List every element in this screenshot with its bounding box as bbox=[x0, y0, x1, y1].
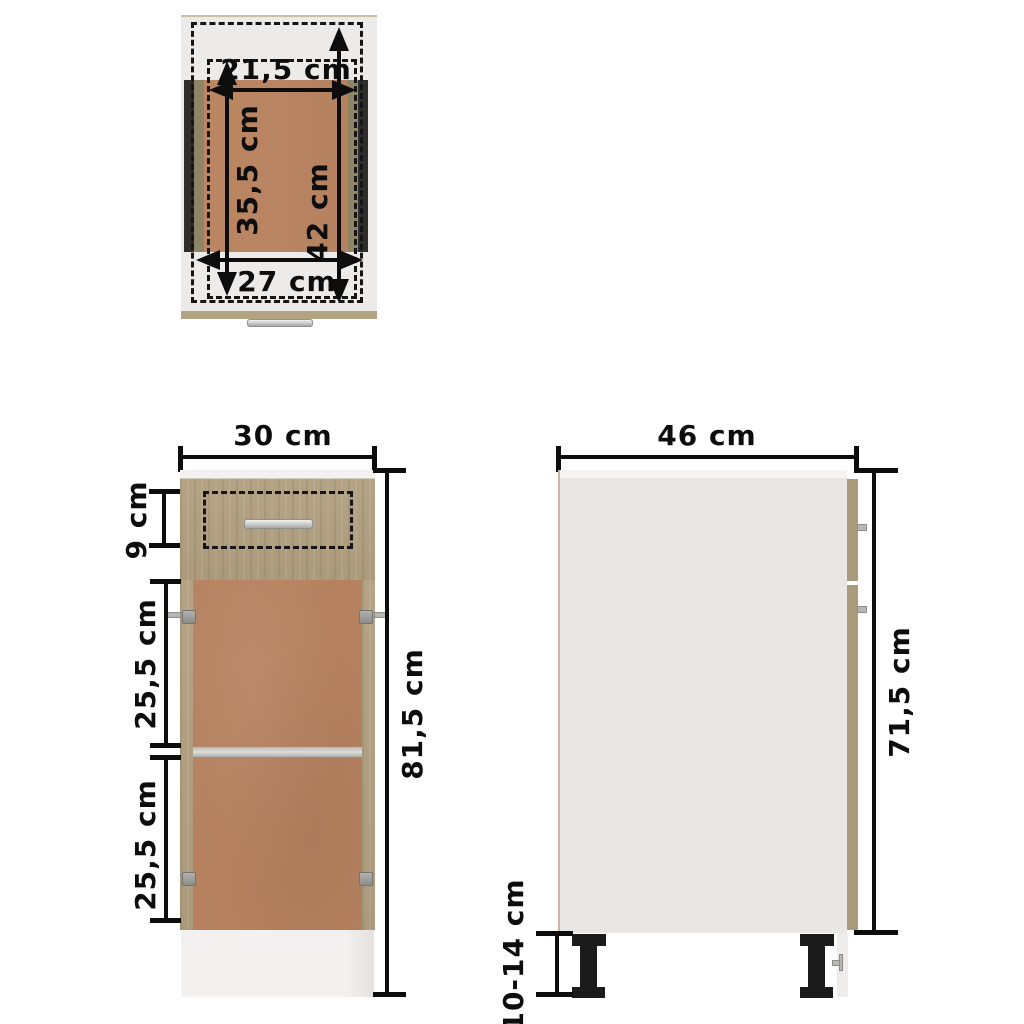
hinge-pin-left bbox=[167, 612, 181, 618]
dim-tick bbox=[150, 918, 181, 923]
dim-tick bbox=[149, 489, 180, 494]
dim-line bbox=[225, 80, 229, 278]
dim-line bbox=[164, 757, 168, 923]
leg-front-stem bbox=[580, 946, 597, 988]
dim-line bbox=[558, 455, 857, 459]
dim-line bbox=[385, 470, 389, 997]
leg-front-flange bbox=[572, 934, 606, 946]
side-panel bbox=[558, 470, 847, 933]
dim-tick bbox=[149, 543, 180, 548]
side-drawer-handle-pin bbox=[857, 524, 867, 531]
dim-label-depth: 46 cm bbox=[657, 422, 757, 450]
dim-label-drawer-inner-depth: 35,5 cm bbox=[234, 104, 262, 236]
side-panel-back-edge bbox=[558, 470, 560, 933]
leg-adjuster-cap bbox=[839, 954, 843, 971]
dim-line bbox=[872, 470, 876, 935]
front-plinth bbox=[181, 930, 374, 997]
arrow-up-icon bbox=[217, 61, 237, 85]
dimension-diagram: 21,5 cm 35,5 cm 42 cm 27 cm 30 cm bbox=[0, 0, 1024, 1024]
dim-tick bbox=[373, 468, 406, 473]
dim-line bbox=[337, 46, 341, 284]
dim-label-drawer-front-height: 9 cm bbox=[123, 480, 151, 559]
leg-back-foot bbox=[800, 987, 833, 998]
hinge-bottom-left bbox=[182, 872, 196, 886]
side-door-handle-pin bbox=[857, 606, 867, 613]
front-shelf bbox=[193, 747, 362, 757]
leg-back-flange bbox=[800, 934, 834, 946]
leg-back-stem bbox=[808, 946, 825, 988]
dim-tick bbox=[150, 743, 181, 748]
dim-label-top-depth: 42 cm bbox=[304, 162, 332, 262]
hinge-bottom-right bbox=[359, 872, 373, 886]
dim-line bbox=[228, 88, 338, 92]
leg-front-foot bbox=[572, 987, 605, 998]
dim-tick bbox=[854, 468, 898, 473]
dim-label-lower-compartment: 25,5 cm bbox=[132, 779, 160, 911]
dim-line bbox=[164, 581, 168, 748]
dim-line bbox=[180, 455, 375, 459]
arrow-up-icon bbox=[329, 27, 349, 51]
dim-tick bbox=[556, 446, 561, 472]
dim-tick bbox=[854, 930, 898, 935]
arrow-left-icon bbox=[196, 250, 220, 270]
dim-tick bbox=[536, 992, 573, 997]
top-view-front-edge bbox=[181, 311, 377, 319]
dim-tick bbox=[536, 931, 573, 936]
dim-line bbox=[215, 258, 341, 262]
hinge-top-right bbox=[359, 610, 373, 624]
dim-label-width: 30 cm bbox=[233, 422, 333, 450]
dim-line bbox=[162, 491, 166, 548]
dim-label-top-width: 27 cm bbox=[237, 268, 337, 296]
dim-tick bbox=[150, 579, 181, 584]
dim-label-legs-height: 10-14 cm bbox=[500, 878, 528, 1024]
dim-label-total-height: 81,5 cm bbox=[399, 648, 427, 780]
dim-line bbox=[555, 934, 559, 997]
arrow-right-icon bbox=[339, 250, 363, 270]
dim-label-body-height: 71,5 cm bbox=[886, 626, 914, 758]
dim-tick bbox=[178, 446, 183, 472]
arrow-right-icon bbox=[332, 80, 356, 100]
front-countertop-edge bbox=[180, 470, 375, 479]
front-drawer-handle bbox=[244, 519, 313, 529]
dim-label-upper-compartment: 25,5 cm bbox=[132, 598, 160, 730]
top-view-handle bbox=[247, 319, 313, 327]
side-door-edge bbox=[847, 585, 858, 930]
hinge-top-left bbox=[182, 610, 196, 624]
dim-tick bbox=[373, 992, 406, 997]
arrow-down-icon bbox=[217, 272, 237, 296]
dim-tick bbox=[150, 755, 181, 760]
